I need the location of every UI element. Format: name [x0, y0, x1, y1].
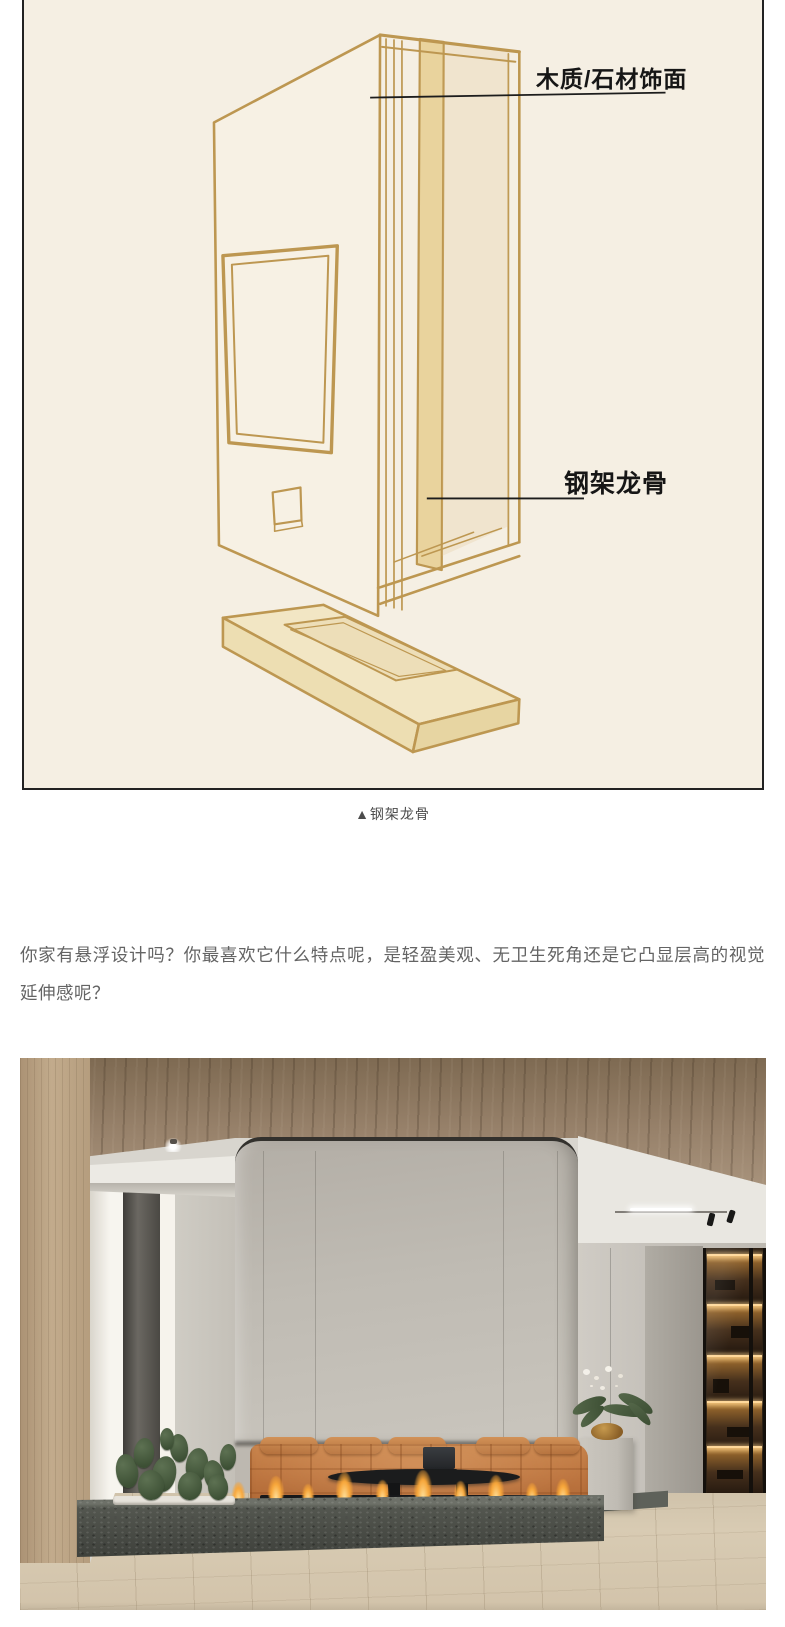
structure-sketch-figure[interactable]: 木质/石材饰面 钢架龙骨 — [22, 0, 764, 790]
article-paragraph: 你家有悬浮设计吗？你最喜欢它什么特点呢，是轻盈美观、无卫生死角还是它凸显层高的视… — [20, 936, 765, 1012]
ceiling-spotlight-icon — [164, 1138, 182, 1152]
figure-caption: ▲钢架龙骨 — [0, 804, 785, 824]
floating-wall-sketch — [24, 0, 762, 788]
floor-shadow — [20, 1602, 766, 1610]
floating-fireplace-column — [235, 1137, 578, 1443]
cabinet-door-frame — [763, 1248, 766, 1493]
living-room-photo[interactable] — [20, 1058, 766, 1610]
cactus-plants — [108, 1426, 248, 1504]
cabinet-glass-door — [706, 1248, 763, 1493]
orchid-flowers — [583, 1369, 590, 1375]
label-wood-stone-facing: 木质/石材饰面 — [536, 60, 687, 94]
article-page: 木质/石材饰面 钢架龙骨 ▲钢架龙骨 你家有悬浮设计吗？你最喜欢它什么特点呢，是… — [0, 0, 785, 1627]
orchid-plant — [565, 1353, 665, 1445]
wood-wall-panel — [20, 1058, 90, 1563]
gold-plant-pot — [591, 1423, 623, 1440]
label-steel-frame: 钢架龙骨 — [564, 464, 668, 500]
linear-led-light — [630, 1208, 692, 1211]
